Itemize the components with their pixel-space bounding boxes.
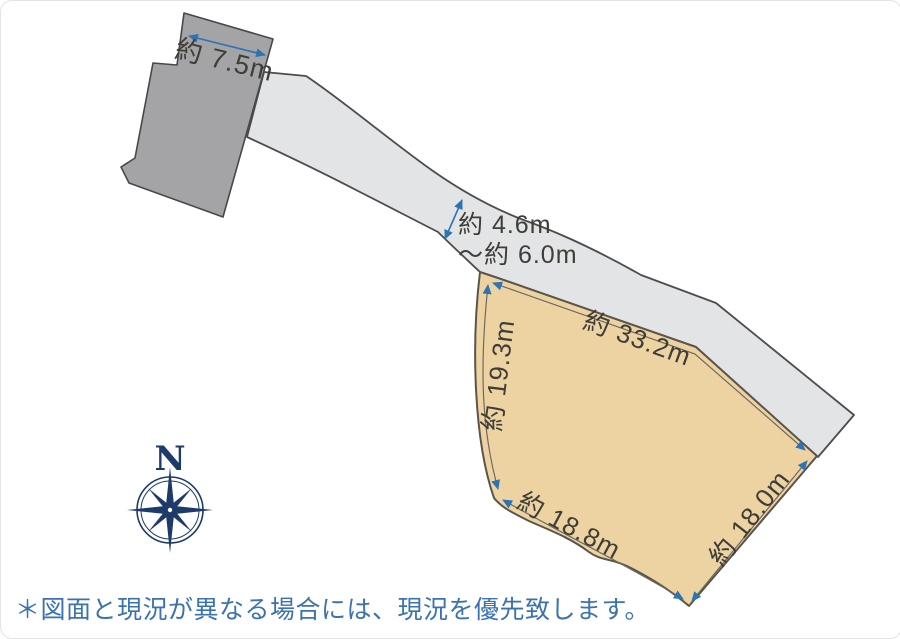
site-plan-drawing xyxy=(1,1,900,638)
compass-rose-icon xyxy=(127,467,213,553)
site-plan-canvas: 約 7.5m 約 4.6m ～約 6.0m 約 33.2m 約 19.3m 約 … xyxy=(0,0,900,639)
road-width-label-line2: ～約 6.0m xyxy=(458,235,578,271)
compass-north-label: N xyxy=(154,439,185,479)
disclaimer-note: ＊図面と現況が異なる場合には、現況を優先致します。 xyxy=(15,590,650,626)
